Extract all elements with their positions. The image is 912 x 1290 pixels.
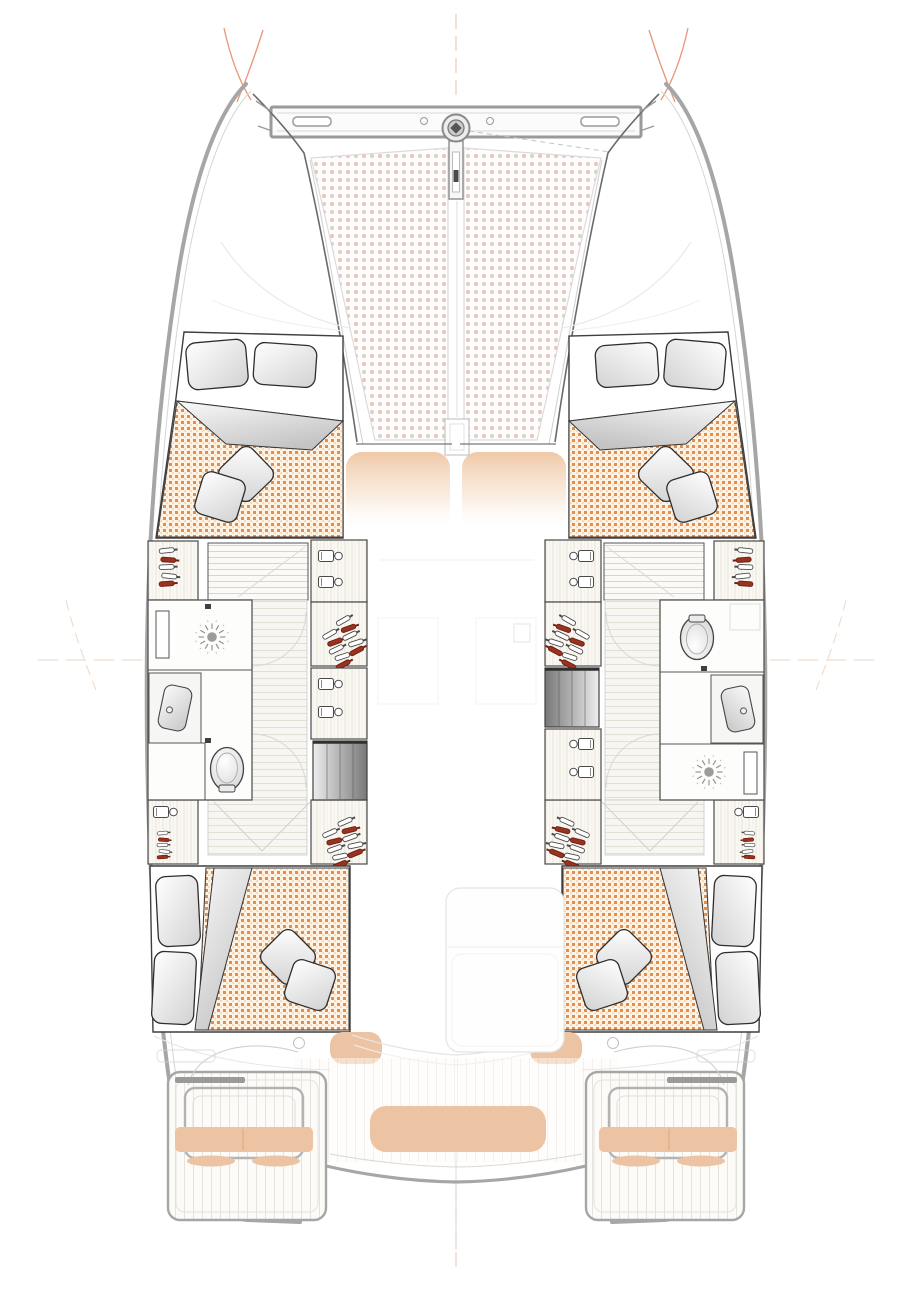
saloon-seat-port	[346, 452, 450, 532]
galley-ghost	[476, 618, 536, 704]
companionway-stairs-starboard	[545, 668, 599, 727]
beam-slot	[581, 117, 619, 126]
cockpit-table-ghost	[446, 888, 564, 1052]
shower-seat	[156, 611, 169, 658]
catamaran-floor-plan	[0, 0, 912, 1290]
companionway-stairs-port	[313, 741, 367, 800]
beam-slot	[293, 117, 331, 126]
aft-cockpit-bench	[370, 1106, 546, 1152]
floor-plan-canvas	[0, 0, 912, 1290]
wardrobe-port	[311, 668, 367, 739]
bathroom-port	[148, 600, 252, 800]
shower-seat	[744, 752, 757, 794]
wardrobe-starboard	[545, 729, 601, 800]
saloon-seat-starboard	[462, 452, 566, 532]
bathroom-starboard	[660, 600, 764, 800]
cockpit-faded	[370, 888, 564, 1152]
galley-ghost	[378, 618, 438, 704]
